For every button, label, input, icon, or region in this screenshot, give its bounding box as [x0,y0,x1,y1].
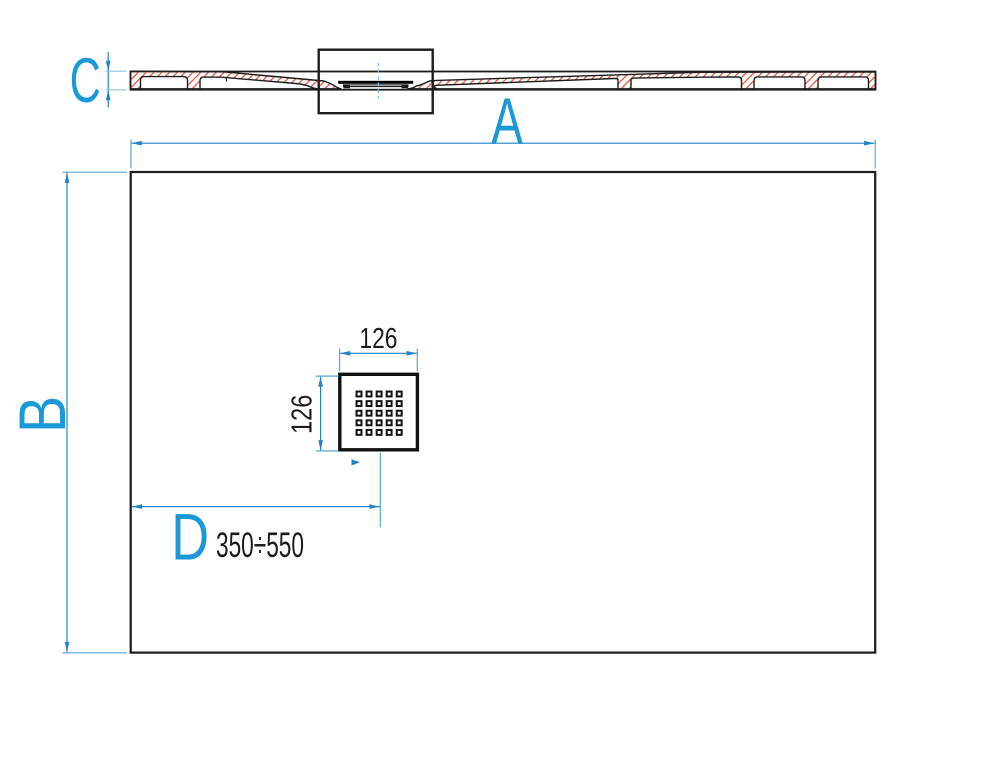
svg-text:A: A [491,86,523,159]
svg-text:C: C [70,44,101,115]
svg-text:126: 126 [359,324,397,355]
svg-text:B: B [6,396,79,433]
svg-text:D: D [171,500,209,574]
svg-text:350÷550: 350÷550 [216,526,304,565]
svg-text:126: 126 [285,395,318,434]
